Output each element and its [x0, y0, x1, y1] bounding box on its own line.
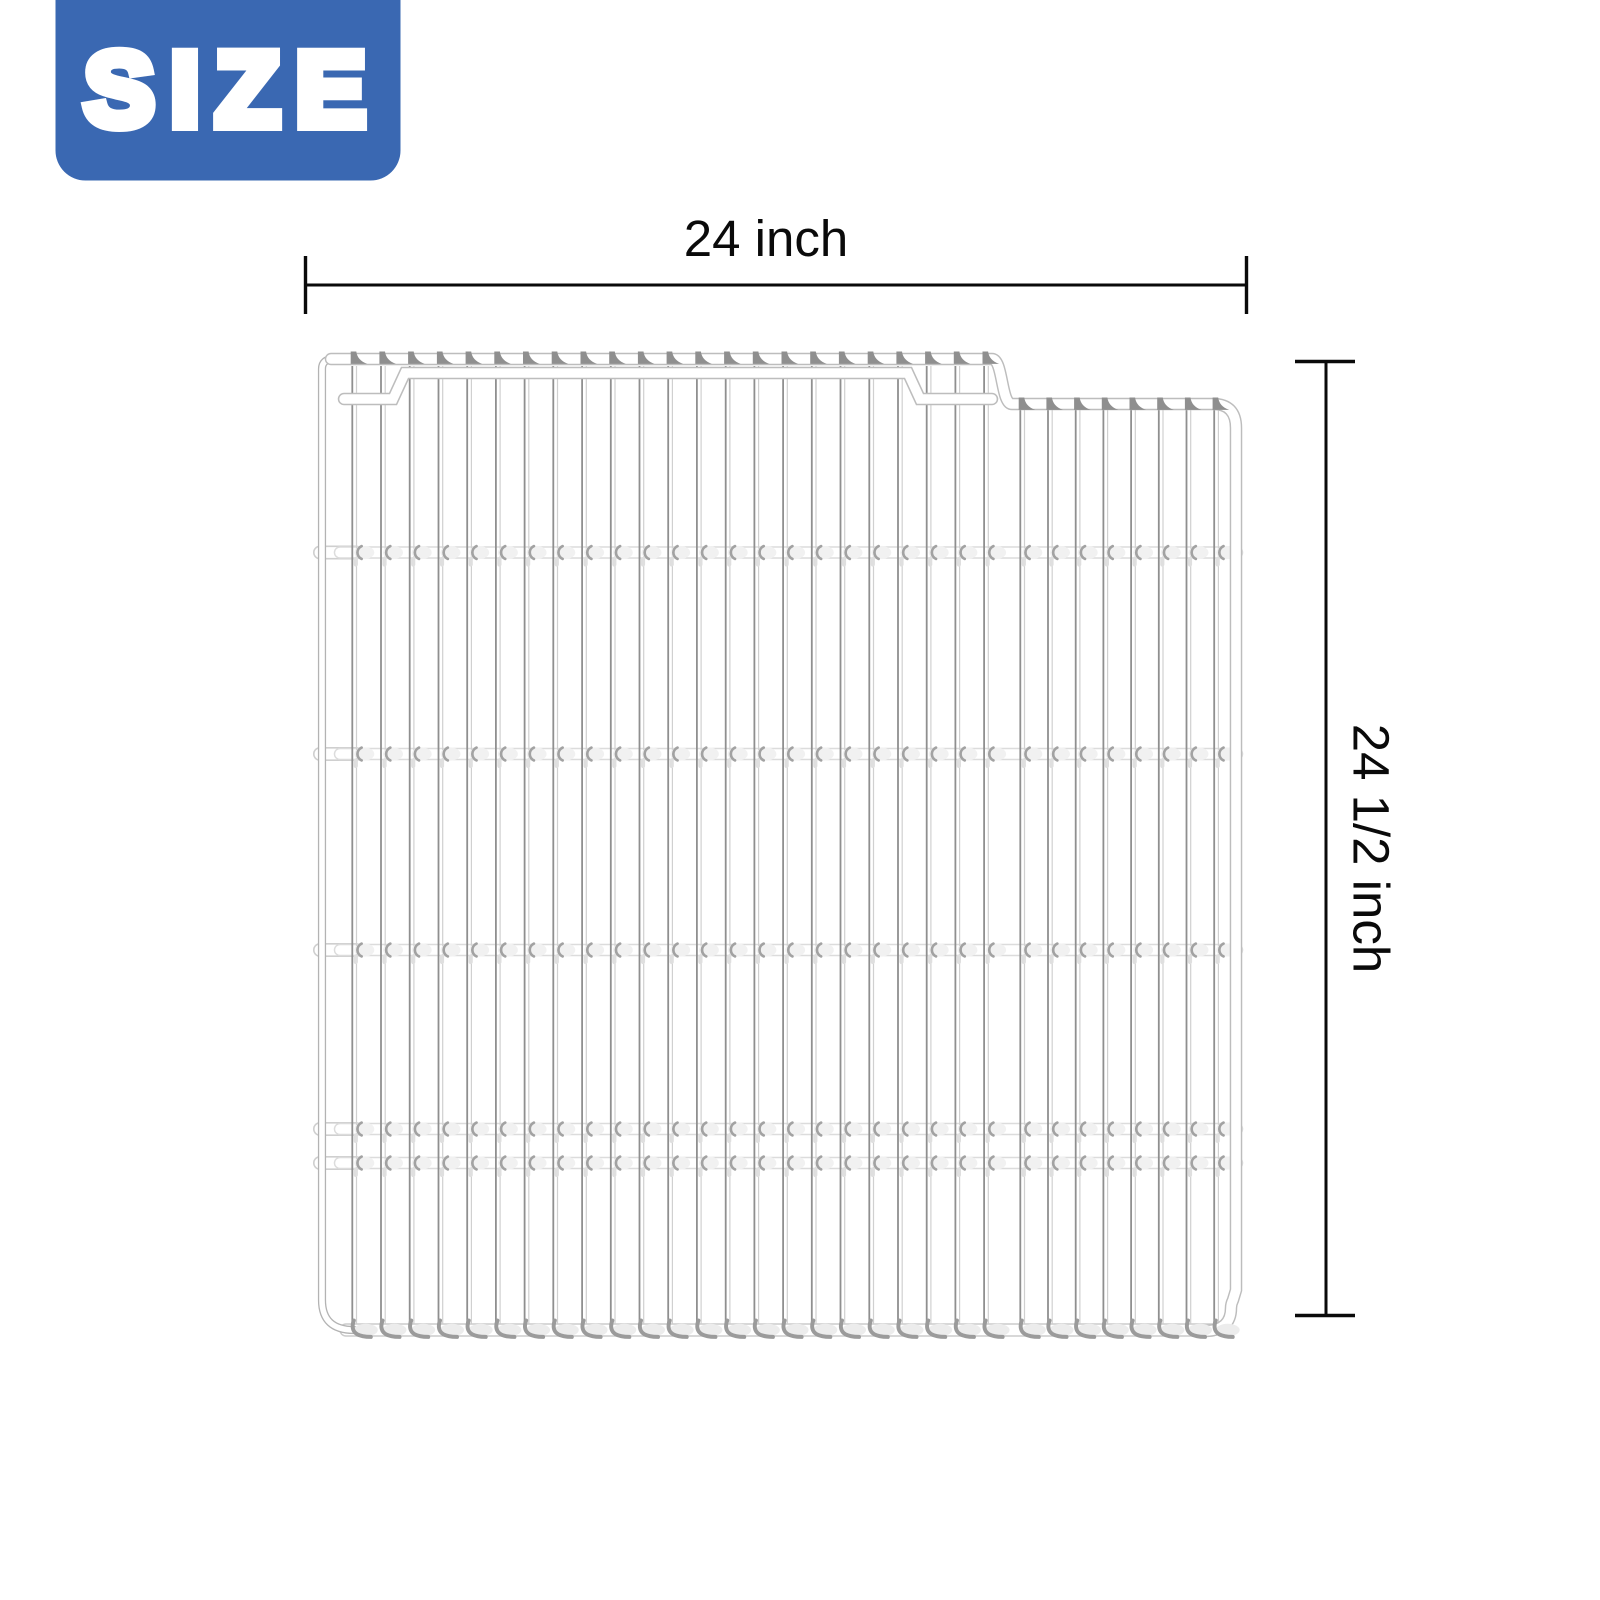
svg-text:24 1/2 inch: 24 1/2 inch [1343, 724, 1400, 974]
svg-text:24 inch: 24 inch [684, 210, 848, 267]
svg-text:SIZE: SIZE [84, 32, 381, 149]
